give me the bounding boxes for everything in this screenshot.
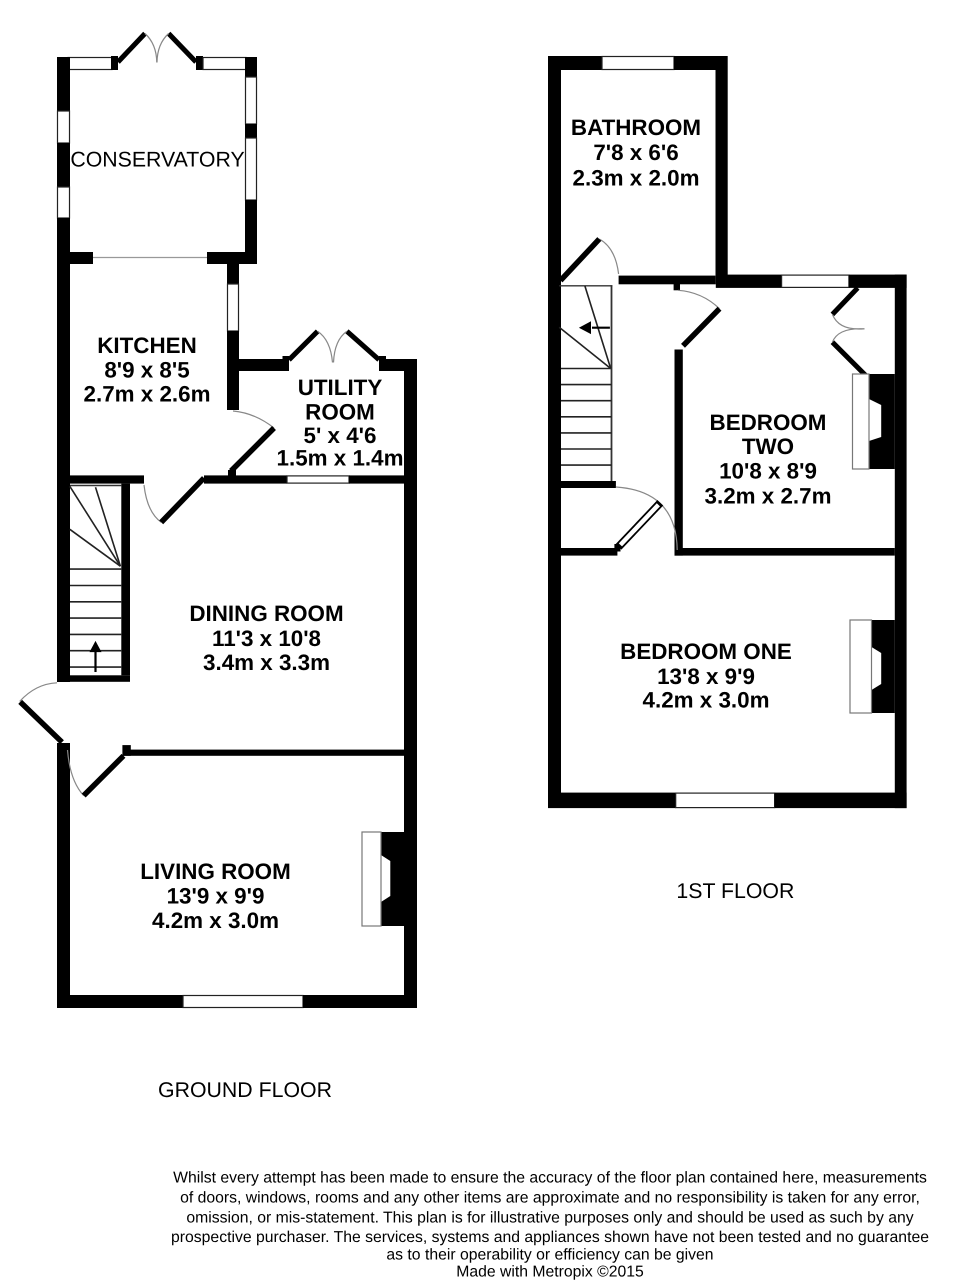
svg-text:7'8 x 6'6: 7'8 x 6'6: [593, 140, 678, 165]
svg-text:3.2m x 2.7m: 3.2m x 2.7m: [705, 483, 832, 508]
svg-text:omission, or mis-statement. Th: omission, or mis-statement. This plan is…: [186, 1209, 913, 1226]
svg-text:LIVING ROOM: LIVING ROOM: [140, 859, 291, 884]
svg-text:4.2m x 3.0m: 4.2m x 3.0m: [643, 687, 770, 712]
svg-text:KITCHEN: KITCHEN: [97, 333, 197, 358]
svg-text:BEDROOM: BEDROOM: [710, 410, 827, 435]
svg-text:4.2m x 3.0m: 4.2m x 3.0m: [152, 908, 279, 933]
svg-text:2.7m x 2.6m: 2.7m x 2.6m: [84, 382, 211, 407]
svg-text:Made with Metropix ©2015: Made with Metropix ©2015: [456, 1264, 644, 1280]
svg-text:ROOM: ROOM: [305, 399, 375, 424]
svg-text:1ST FLOOR: 1ST FLOOR: [676, 879, 794, 903]
svg-text:3.4m x 3.3m: 3.4m x 3.3m: [203, 650, 330, 675]
svg-text:8'9 x 8'5: 8'9 x 8'5: [104, 357, 189, 382]
svg-text:as to their operability or eff: as to their operability or efficiency ca…: [386, 1247, 713, 1264]
svg-text:BATHROOM: BATHROOM: [571, 115, 701, 140]
svg-text:UTILITY: UTILITY: [298, 375, 383, 400]
svg-text:DINING ROOM: DINING ROOM: [189, 601, 343, 626]
svg-text:of doors, windows, rooms and a: of doors, windows, rooms and any other i…: [180, 1190, 920, 1207]
svg-text:Whilst every attempt has been: Whilst every attempt has been made to en…: [173, 1169, 927, 1186]
svg-text:prospective purchaser. The ser: prospective purchaser. The services, sys…: [171, 1229, 929, 1246]
svg-text:5' x 4'6: 5' x 4'6: [304, 423, 377, 448]
svg-text:11'3 x 10'8: 11'3 x 10'8: [212, 626, 321, 651]
svg-text:BEDROOM ONE: BEDROOM ONE: [620, 639, 792, 664]
svg-text:10'8 x 8'9: 10'8 x 8'9: [719, 459, 817, 484]
svg-text:13'9 x 9'9: 13'9 x 9'9: [167, 883, 265, 908]
svg-text:GROUND FLOOR: GROUND FLOOR: [158, 1078, 332, 1102]
svg-text:2.3m x 2.0m: 2.3m x 2.0m: [573, 165, 700, 190]
svg-text:TWO: TWO: [742, 434, 794, 459]
svg-text:13'8 x 9'9: 13'8 x 9'9: [657, 664, 755, 689]
svg-text:CONSERVATORY: CONSERVATORY: [70, 148, 244, 172]
svg-text:1.5m x 1.4m: 1.5m x 1.4m: [277, 446, 404, 471]
